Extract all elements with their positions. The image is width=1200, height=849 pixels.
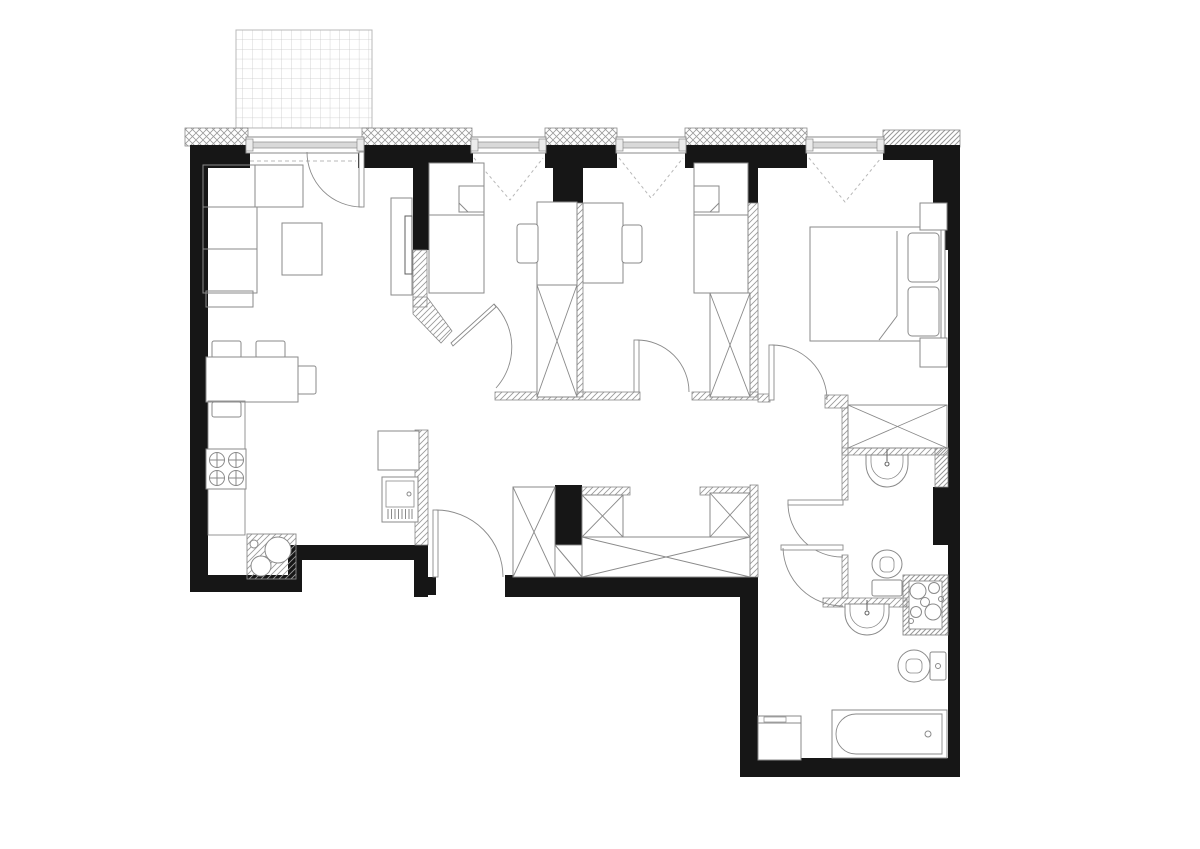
balcony — [236, 30, 372, 128]
dining-table-set — [206, 341, 316, 417]
window-balcony — [246, 137, 364, 161]
door-bedroom1 — [451, 304, 512, 388]
window-master-bedroom — [806, 137, 884, 202]
nightstand-2 — [920, 338, 947, 367]
chair-2 — [622, 225, 642, 263]
hall-wardrobe-long — [582, 537, 750, 577]
bath-toilet — [898, 650, 946, 682]
plan-root — [185, 30, 960, 777]
fridge-oven-column — [378, 431, 419, 522]
sofa — [203, 165, 303, 307]
door-balcony — [307, 152, 364, 207]
wc-sink — [866, 449, 908, 487]
kitchen-sink — [247, 534, 296, 579]
master-bed — [810, 227, 945, 341]
bath-sink — [845, 600, 889, 635]
hall-cabinet-1 — [582, 495, 623, 537]
hall-cabinet-2 — [710, 493, 750, 537]
wc-toilet — [872, 550, 902, 596]
window-bedroom2 — [616, 137, 686, 198]
desk-1 — [537, 202, 577, 285]
chair-1 — [517, 224, 538, 263]
hall-box-small — [555, 545, 582, 577]
bathtub — [832, 710, 947, 758]
door-bedroom2 — [634, 340, 689, 392]
floor-plan — [0, 0, 1200, 849]
floor-plan-page — [0, 0, 1200, 849]
wardrobe-1 — [537, 285, 577, 397]
nightstand-1 — [920, 203, 947, 230]
desk-2 — [583, 203, 623, 283]
bed-2 — [694, 163, 748, 293]
door-master-bedroom — [769, 345, 827, 400]
wardrobe-2 — [710, 293, 750, 397]
shower — [903, 575, 948, 635]
tv-cabinet — [391, 198, 412, 295]
bed-1 — [429, 163, 484, 293]
washing-machine — [758, 716, 801, 760]
stove — [206, 449, 246, 489]
hall-wardrobe-small — [513, 487, 555, 577]
coffee-table — [282, 223, 322, 275]
door-bathroom — [781, 545, 843, 606]
master-closet — [848, 405, 947, 448]
door-entrance — [433, 510, 503, 577]
